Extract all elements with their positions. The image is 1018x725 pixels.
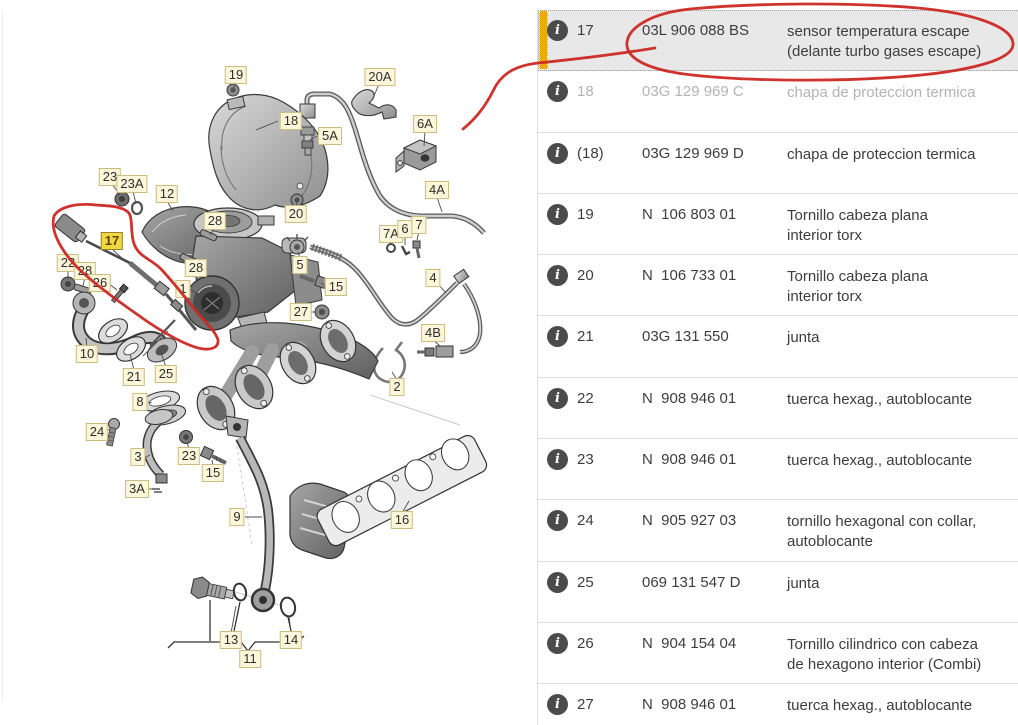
diagram-part-label-15[interactable]: 15 xyxy=(325,278,347,296)
info-icon[interactable]: i xyxy=(547,510,568,531)
diagram-part-label-3a[interactable]: 3A xyxy=(125,480,149,498)
diagram-part-label-1[interactable]: 1 xyxy=(175,280,190,298)
description-cell: tornillo hexagonal con collar, autobloca… xyxy=(787,512,1012,552)
info-icon[interactable]: i xyxy=(547,143,568,164)
item-number-cell: 18 xyxy=(577,83,594,100)
description-cell: Tornillo cabeza plana interior torx xyxy=(787,267,1012,307)
diagram-part-label-14[interactable]: 14 xyxy=(280,631,302,649)
diagram-part-label-5[interactable]: 5 xyxy=(292,256,307,274)
parts-table: i1703L 906 088 BSsensor temperatura esca… xyxy=(537,10,1018,725)
diagram-part-label-7[interactable]: 7 xyxy=(411,216,426,234)
diagram-part-label-28[interactable]: 28 xyxy=(204,212,226,230)
item-number-cell: 23 xyxy=(577,451,594,468)
diagram-part-label-6[interactable]: 6 xyxy=(397,220,412,238)
diagram-part-label-6a[interactable]: 6A xyxy=(413,115,437,133)
part-number-cell: 03G 129 969 C xyxy=(642,83,744,100)
table-row-item-17[interactable]: i1703L 906 088 BSsensor temperatura esca… xyxy=(538,10,1018,71)
item-number-cell: 25 xyxy=(577,574,594,591)
description-cell: sensor temperatura escape (delante turbo… xyxy=(787,22,1012,62)
part-number-cell: N 905 927 03 xyxy=(642,512,736,529)
item-number-cell: 26 xyxy=(577,635,594,652)
diagram-part-label-27[interactable]: 27 xyxy=(290,303,312,321)
info-icon[interactable]: i xyxy=(547,20,568,41)
info-icon[interactable]: i xyxy=(547,81,568,102)
item-number-cell: (18) xyxy=(577,145,604,162)
part-number-cell: N 908 946 01 xyxy=(642,390,736,407)
info-icon[interactable]: i xyxy=(547,572,568,593)
diagram-part-label-15[interactable]: 15 xyxy=(202,464,224,482)
info-icon[interactable]: i xyxy=(547,388,568,409)
part-number-cell: N 106 733 01 xyxy=(642,267,736,284)
diagram-part-label-4[interactable]: 4 xyxy=(425,269,440,287)
info-icon[interactable]: i xyxy=(547,449,568,470)
table-row-item-25[interactable]: i25069 131 547 Djunta xyxy=(538,562,1018,623)
diagram-part-label-26[interactable]: 26 xyxy=(89,274,111,292)
diagram-part-label-10[interactable]: 10 xyxy=(76,345,98,363)
part-number-cell: N 908 946 01 xyxy=(642,696,736,713)
description-cell: chapa de proteccion termica xyxy=(787,145,1012,165)
info-icon[interactable]: i xyxy=(547,204,568,225)
table-row-item-26[interactable]: i26N 904 154 04Tornillo cilindrico con c… xyxy=(538,623,1018,684)
table-row-item-20[interactable]: i20N 106 733 01Tornillo cabeza plana int… xyxy=(538,255,1018,316)
part-number-cell: N 908 946 01 xyxy=(642,451,736,468)
table-row-item-27[interactable]: i27N 908 946 01tuerca hexag., autoblocan… xyxy=(538,684,1018,725)
part-number-cell: 03G 129 969 D xyxy=(642,145,744,162)
diagram-part-label-2[interactable]: 2 xyxy=(389,378,404,396)
diagram-part-label-18[interactable]: 18 xyxy=(280,112,302,130)
part-number-cell: N 106 803 01 xyxy=(642,206,736,223)
diagram-part-label-21[interactable]: 21 xyxy=(123,368,145,386)
diagram-part-label-4b[interactable]: 4B xyxy=(421,324,445,342)
diagram-part-label-20a[interactable]: 20A xyxy=(364,68,395,86)
description-cell: tuerca hexag., autoblocante xyxy=(787,390,1012,410)
description-cell: tuerca hexag., autoblocante xyxy=(787,696,1012,716)
item-number-cell: 27 xyxy=(577,696,594,713)
table-row-item-24[interactable]: i24N 905 927 03tornillo hexagonal con co… xyxy=(538,500,1018,561)
info-icon[interactable]: i xyxy=(547,265,568,286)
part-number-cell: 03L 906 088 BS xyxy=(642,22,749,39)
diagram-part-label-17[interactable]: 17 xyxy=(101,232,123,250)
table-row-item-21[interactable]: i2103G 131 550junta xyxy=(538,316,1018,377)
diagram-part-label-11[interactable]: 11 xyxy=(239,650,261,668)
part-number-cell: N 904 154 04 xyxy=(642,635,736,652)
info-icon[interactable]: i xyxy=(547,694,568,715)
table-row-item-23[interactable]: i23N 908 946 01tuerca hexag., autoblocan… xyxy=(538,439,1018,500)
diagram-part-label-5a[interactable]: 5A xyxy=(318,127,342,145)
diagram-part-label-23[interactable]: 23 xyxy=(178,447,200,465)
diagram-part-label-16[interactable]: 16 xyxy=(391,511,413,529)
description-cell: junta xyxy=(787,328,1012,348)
table-row-item-19[interactable]: i19N 106 803 01Tornillo cabeza plana int… xyxy=(538,194,1018,255)
part-number-cell: 069 131 547 D xyxy=(642,574,740,591)
info-icon[interactable]: i xyxy=(547,633,568,654)
info-icon[interactable]: i xyxy=(547,326,568,347)
description-cell: Tornillo cilindrico con cabeza de hexago… xyxy=(787,635,1012,675)
diagram-part-label-25[interactable]: 25 xyxy=(155,365,177,383)
selection-bar xyxy=(539,11,548,69)
diagram-part-label-20[interactable]: 20 xyxy=(285,205,307,223)
diagram-part-label-28[interactable]: 28 xyxy=(185,259,207,277)
diagram-part-label-8[interactable]: 8 xyxy=(132,393,147,411)
item-number-cell: 19 xyxy=(577,206,594,223)
item-number-cell: 21 xyxy=(577,328,594,345)
table-row-item-22[interactable]: i22N 908 946 01tuerca hexag., autoblocan… xyxy=(538,378,1018,439)
item-number-cell: 24 xyxy=(577,512,594,529)
table-row-item-18[interactable]: i1803G 129 969 Cchapa de proteccion term… xyxy=(538,71,1018,132)
diagram-part-label-19[interactable]: 19 xyxy=(225,66,247,84)
diagram-part-label-3[interactable]: 3 xyxy=(130,448,145,466)
diagram-part-label-12[interactable]: 12 xyxy=(156,185,178,203)
part-number-cell: 03G 131 550 xyxy=(642,328,729,345)
description-cell: Tornillo cabeza plana interior torx xyxy=(787,206,1012,246)
diagram-labels: 1920A185A6A2323A124A2817207A672228262851… xyxy=(0,0,537,725)
diagram-part-label-24[interactable]: 24 xyxy=(86,423,108,441)
diagram-part-label-9[interactable]: 9 xyxy=(229,508,244,526)
description-cell: chapa de proteccion termica xyxy=(787,83,1012,103)
description-cell: tuerca hexag., autoblocante xyxy=(787,451,1012,471)
parts-catalog-page: 1920A185A6A2323A124A2817207A672228262851… xyxy=(0,0,1018,725)
diagram-part-label-23a[interactable]: 23A xyxy=(116,175,147,193)
description-cell: junta xyxy=(787,574,1012,594)
item-number-cell: 20 xyxy=(577,267,594,284)
diagram-part-label-4a[interactable]: 4A xyxy=(425,181,449,199)
item-number-cell: 17 xyxy=(577,22,594,39)
table-row-item-18[interactable]: i(18)03G 129 969 Dchapa de proteccion te… xyxy=(538,133,1018,194)
item-number-cell: 22 xyxy=(577,390,594,407)
diagram-part-label-13[interactable]: 13 xyxy=(220,631,242,649)
